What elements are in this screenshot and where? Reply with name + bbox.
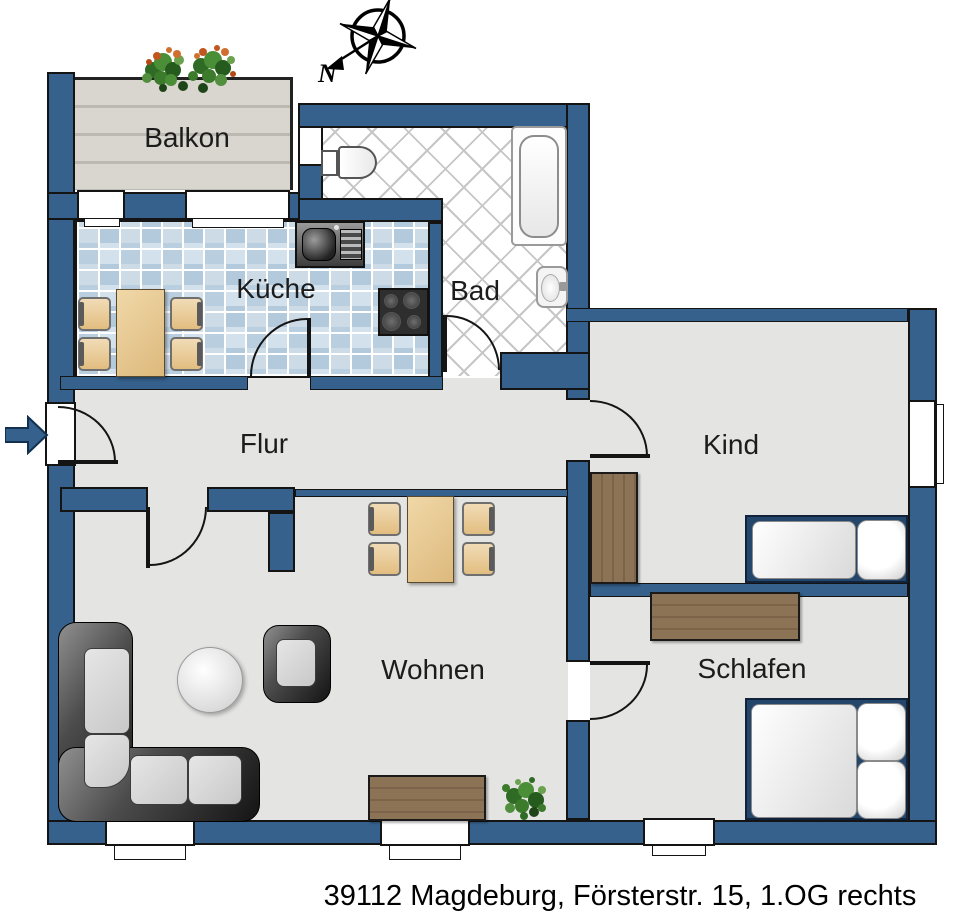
toilet-icon bbox=[321, 146, 379, 180]
chair bbox=[78, 297, 111, 331]
round-coffee-table-icon bbox=[177, 647, 243, 713]
wall-hall-living-b bbox=[207, 487, 295, 512]
chair-back bbox=[79, 302, 84, 326]
burner bbox=[382, 312, 401, 331]
dining-table-living bbox=[407, 496, 454, 583]
compass-north-label: N bbox=[317, 59, 338, 84]
wall-bath-top bbox=[298, 103, 590, 128]
room-label-wohnen: Wohnen bbox=[353, 654, 513, 686]
chair-back bbox=[369, 547, 374, 571]
chair bbox=[368, 502, 401, 536]
window-sill bbox=[192, 218, 284, 228]
room-label-balkon: Balkon bbox=[107, 122, 267, 154]
address-caption: 39112 Magdeburg, Försterstr. 15, 1.OG re… bbox=[280, 880, 960, 913]
kitchen-door-leaf bbox=[307, 318, 311, 376]
mattress bbox=[751, 704, 857, 818]
chair bbox=[462, 542, 495, 576]
sink-bowl bbox=[302, 228, 336, 261]
burner bbox=[407, 315, 421, 329]
corner-sofa-icon bbox=[58, 622, 260, 822]
chair-back bbox=[197, 342, 202, 366]
compass-rose-icon: N bbox=[316, 0, 420, 84]
wall-child-top bbox=[566, 308, 908, 322]
window-bedroom bbox=[643, 818, 715, 846]
sink-drainer bbox=[340, 229, 362, 260]
chair bbox=[170, 337, 203, 371]
window-sill bbox=[114, 845, 186, 860]
room-label-flur: Flur bbox=[184, 428, 344, 460]
balcony-plant-icon bbox=[133, 40, 245, 98]
window-sill bbox=[84, 218, 120, 227]
entrance-arrow-icon bbox=[5, 415, 49, 455]
mattress bbox=[752, 521, 856, 579]
sofa-cushion bbox=[188, 755, 242, 805]
wall-child-left bbox=[566, 460, 590, 662]
armchair-icon bbox=[263, 625, 331, 703]
chair bbox=[78, 337, 111, 371]
wall-bedroom-left bbox=[566, 720, 590, 820]
balcony-door bbox=[185, 190, 290, 220]
toilet-bowl bbox=[338, 146, 377, 179]
chair bbox=[462, 502, 495, 536]
room-label-bad: Bad bbox=[395, 275, 555, 307]
window-sill bbox=[389, 845, 461, 860]
single-bed-icon bbox=[745, 515, 908, 583]
bath-niche bbox=[298, 126, 323, 166]
wall-hall-top-a bbox=[60, 376, 248, 390]
wall-hall-living-a bbox=[60, 487, 148, 512]
plant-icon bbox=[498, 776, 550, 820]
window-sill bbox=[652, 845, 706, 856]
floor-plan: N Balkon Küche Bad Flur Kind Wohnen Schl… bbox=[0, 0, 960, 923]
window-child bbox=[908, 400, 936, 488]
wall-living-stub bbox=[268, 512, 295, 572]
chair-back bbox=[197, 302, 202, 326]
bathtub-basin bbox=[519, 135, 559, 238]
room-label-kueche: Küche bbox=[196, 273, 356, 305]
bathtub-icon bbox=[511, 126, 567, 246]
room-label-schlafen: Schlafen bbox=[672, 653, 832, 685]
washbasin-faucet bbox=[559, 282, 567, 291]
chair-back bbox=[369, 507, 374, 531]
wardrobe-child bbox=[590, 472, 638, 584]
window-living-2 bbox=[380, 818, 470, 846]
chair-back bbox=[489, 547, 494, 571]
window-balcony-1 bbox=[77, 190, 125, 220]
pillow bbox=[857, 520, 906, 580]
sofa-cushion bbox=[130, 755, 188, 805]
armchair-cushion bbox=[276, 639, 316, 687]
sideboard-icon bbox=[368, 775, 486, 821]
room-label-kind: Kind bbox=[651, 429, 811, 461]
dining-table-kitchen bbox=[116, 289, 165, 377]
wall-bath-kitchen-band bbox=[298, 198, 443, 222]
wall-right bbox=[908, 308, 937, 845]
sofa-cushion bbox=[84, 648, 130, 734]
wardrobe-bedroom bbox=[650, 592, 800, 641]
pillow bbox=[857, 761, 906, 819]
toilet-tank bbox=[321, 150, 338, 176]
double-bed-icon bbox=[745, 698, 908, 820]
window-sill bbox=[936, 404, 944, 484]
wall-bath-bottom bbox=[500, 352, 590, 390]
chair-back bbox=[489, 507, 494, 531]
chair bbox=[368, 542, 401, 576]
pillow bbox=[857, 703, 906, 761]
chair-back bbox=[79, 342, 84, 366]
kitchen-sink-icon bbox=[295, 221, 365, 268]
wall-hall-top-b bbox=[310, 376, 443, 390]
sink-faucet bbox=[334, 225, 339, 230]
window-living-1 bbox=[105, 818, 195, 846]
